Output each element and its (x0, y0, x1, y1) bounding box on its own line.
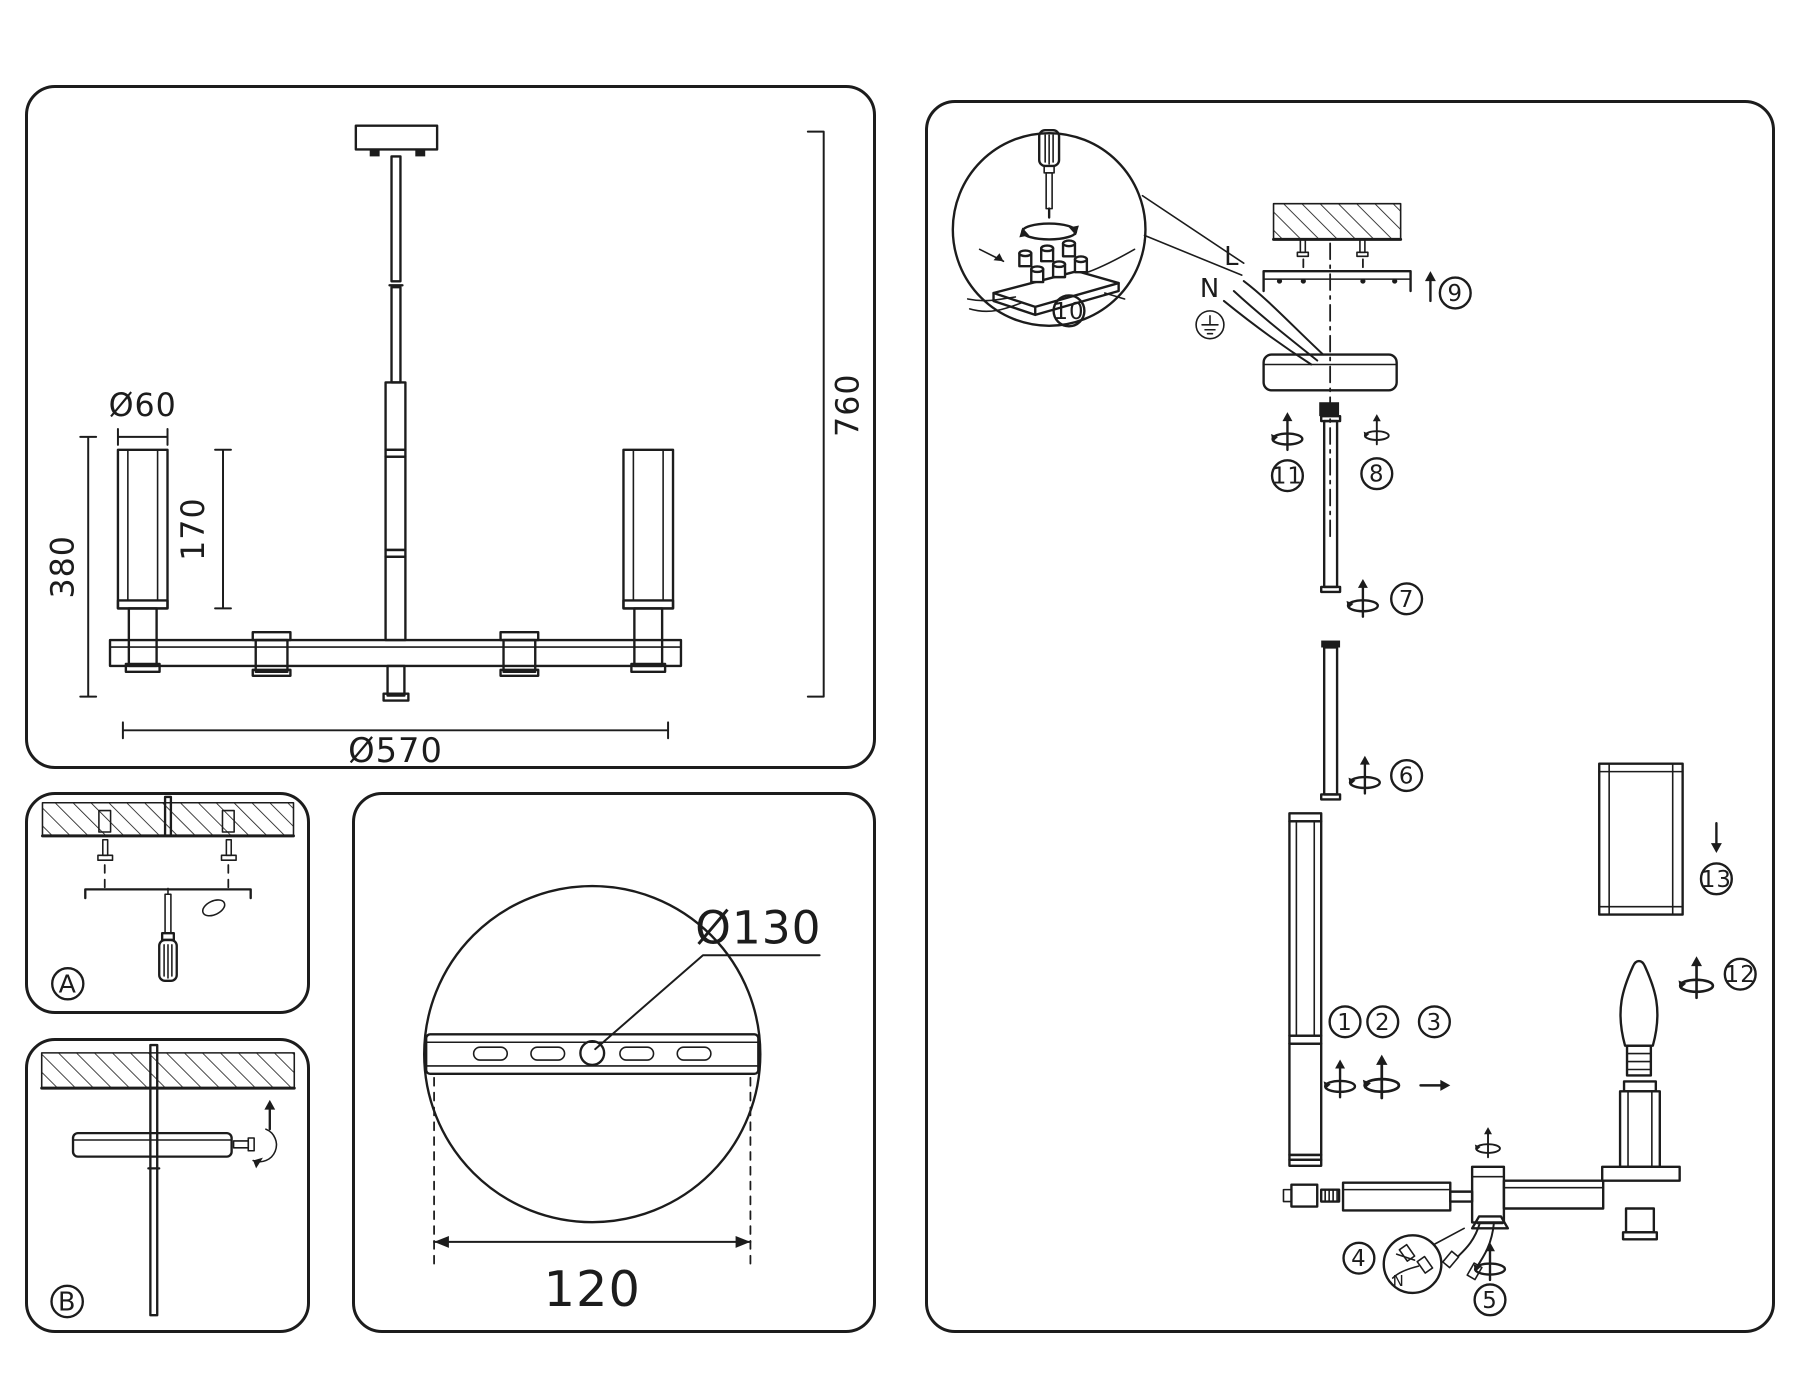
ceiling-canopy (356, 126, 437, 157)
step-label-a: A (52, 968, 83, 999)
shade-part (1599, 764, 1682, 915)
wire-label-n: N (1200, 274, 1220, 304)
stem (386, 156, 406, 640)
step-11-num: 11 (1272, 464, 1303, 490)
step-6-num: 6 (1399, 764, 1415, 790)
earth-ground-symbol (1196, 311, 1224, 339)
panel-step-b: B (25, 1038, 310, 1333)
socket-collar-right (501, 632, 539, 676)
washer-icon (200, 897, 227, 919)
socket-collar-left (253, 632, 291, 676)
central-column (1289, 813, 1321, 1165)
mains-wires (1224, 281, 1323, 364)
step-9-num: 9 (1447, 281, 1463, 307)
diameter-callout: Ø130 (595, 901, 821, 1049)
dim-fixture-diameter: Ø570 (123, 722, 668, 766)
dim-text-dia130: Ø130 (695, 901, 822, 954)
step-4-num: 4 (1351, 1246, 1367, 1272)
wire-label-n-detail: N (1393, 1272, 1405, 1290)
arm-assembly (1283, 1127, 1603, 1222)
step-2-num: 2 (1375, 1010, 1391, 1036)
socket-assembly (1602, 1081, 1679, 1239)
lamp-left (118, 450, 168, 672)
step-1: 1 (1324, 1006, 1361, 1097)
dim-body-height: 380 (45, 437, 96, 697)
step-11: 11 (1271, 412, 1303, 491)
push-up-arrow (264, 1100, 275, 1129)
step-2: 2 (1363, 1006, 1399, 1098)
dim-shade-height: 170 (176, 450, 231, 609)
dim-shade-diameter: Ø60 (109, 388, 177, 445)
step-13: 13 (1701, 823, 1732, 894)
step-5-num: 5 (1482, 1288, 1498, 1314)
step-3: 3 (1419, 1006, 1450, 1090)
canopy-assembly (1264, 355, 1397, 417)
ceiling-hatch (42, 797, 293, 836)
step-8-num: 8 (1369, 462, 1385, 488)
step-10-num: 10 (1053, 299, 1084, 325)
dim-total-drop: 760 (808, 132, 867, 697)
step-7-num: 7 (1399, 587, 1415, 613)
terminal-detail-bubble: 10 (953, 130, 1146, 326)
dim-text-380: 380 (45, 535, 81, 599)
dim-text-dia60: Ø60 (109, 388, 177, 424)
wire-labels: N L (1196, 242, 1239, 338)
arm-bar (110, 640, 681, 700)
step-8: 8 (1361, 414, 1392, 489)
panel-dimensions: Ø60 380 170 760 Ø570 (25, 85, 876, 769)
dim-text-120: 120 (544, 1260, 641, 1318)
step-10: 10 (1053, 295, 1084, 326)
down-rod (148, 1088, 159, 1315)
panel-canopy-detail: Ø130 120 (352, 792, 876, 1333)
bulb-part (1620, 961, 1657, 1075)
rod-lower (1321, 641, 1340, 800)
step-5: 5 (1474, 1242, 1506, 1315)
step-9: 9 (1425, 271, 1471, 308)
canopy-plate (73, 1133, 232, 1156)
step-12: 12 (1679, 956, 1756, 998)
ceiling-hatch (42, 1045, 295, 1088)
step-label-b: B (51, 1286, 82, 1317)
instruction-sheet: Ø60 380 170 760 Ø570 (0, 0, 1800, 1400)
ceiling-section (1274, 204, 1401, 272)
lamp-right (623, 450, 673, 672)
dim-text-170: 170 (176, 497, 212, 561)
step-1-num: 1 (1337, 1010, 1353, 1036)
step-3-num: 3 (1427, 1010, 1443, 1036)
step-7: 7 (1347, 579, 1422, 617)
mount-plate (426, 1034, 758, 1074)
set-screw-icon (234, 1129, 277, 1168)
dim-hole-spacing: 120 (434, 1078, 750, 1318)
step-6: 6 (1349, 756, 1422, 794)
panel-step-a: A (25, 792, 310, 1014)
rotate-icon (1019, 224, 1079, 240)
dim-text-dia570: Ø570 (348, 731, 443, 766)
mount-bracket (1264, 271, 1411, 291)
screwdriver-icon (159, 888, 177, 980)
dim-text-760: 760 (830, 373, 866, 437)
step-4: 4 (1344, 1243, 1375, 1274)
step-13-num: 13 (1701, 867, 1732, 893)
step-12-num: 12 (1725, 962, 1756, 988)
label-a-text: A (59, 970, 77, 999)
screwdriver-icon (1039, 130, 1059, 217)
panel-assembly: 10 N L (925, 100, 1775, 1333)
label-b-text: B (58, 1287, 76, 1317)
wire-label-l: L (1224, 242, 1239, 272)
